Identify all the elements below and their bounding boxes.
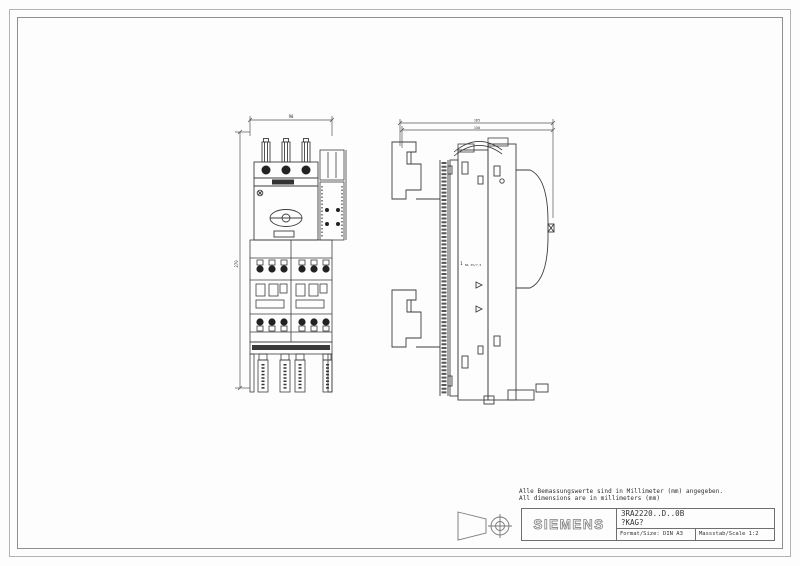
- dimension-notes: Alle Bemassungswerte sind in Millimeter …: [519, 488, 723, 503]
- brand-cell: SIEMENS: [522, 509, 617, 540]
- side-view-dimension-lines: [398, 119, 555, 218]
- adapter-toothed-strip: [440, 160, 448, 396]
- contactor-terminal-screws: [256, 265, 329, 325]
- accessory-contacts: [325, 208, 340, 226]
- breaker-line-terminals: [262, 139, 310, 163]
- side-view-drawing: 165 150: [388, 106, 568, 408]
- side-view-callout-number: 1: [460, 261, 463, 267]
- title-block-bottom-row: Format/Size: DIN A3 Massstab/Scale 1:2: [617, 529, 774, 540]
- device-side-profile: [448, 144, 554, 404]
- side-outer-dimension-label: 165: [474, 119, 480, 123]
- dimension-note-english: All dimensions are in millimeters (mm): [519, 495, 723, 502]
- side-accessory-module: [320, 150, 346, 240]
- projection-cone-icon: [458, 512, 486, 540]
- contactor-pair: [250, 240, 332, 342]
- side-view-rail-label: NS 35/7,5: [465, 263, 481, 267]
- front-width-dimension-label: 90: [289, 114, 294, 119]
- front-height-dimension-label: 270: [234, 260, 239, 268]
- busbar-adapter-rails: [250, 342, 332, 392]
- breaker-terminal-screws: [262, 166, 311, 185]
- product-number: 3RA2220..D..0B: [621, 510, 774, 519]
- drawing-sheet: 90 270: [0, 0, 800, 566]
- format-cell: Format/Size: DIN A3: [617, 529, 696, 540]
- product-cell: 3RA2220..D..0B ?KAG?: [617, 509, 774, 529]
- projection-method-symbol: [452, 507, 514, 545]
- wiring-jumper-arc: [454, 138, 508, 156]
- scale-cell: Massstab/Scale 1:2: [696, 529, 774, 540]
- title-block: SIEMENS 3RA2220..D..0B ?KAG? Format/Size…: [521, 508, 775, 541]
- dimension-note-german: Alle Bemassungswerte sind in Millimeter …: [519, 488, 723, 495]
- side-inner-dimension-label: 150: [474, 126, 480, 130]
- title-block-right: 3RA2220..D..0B ?KAG? Format/Size: DIN A3…: [617, 509, 774, 540]
- busbar-claw-profiles: [392, 142, 440, 347]
- drawing-code: ?KAG?: [621, 519, 774, 528]
- siemens-logo: SIEMENS: [533, 517, 604, 533]
- front-view-drawing: 90 270: [230, 108, 356, 400]
